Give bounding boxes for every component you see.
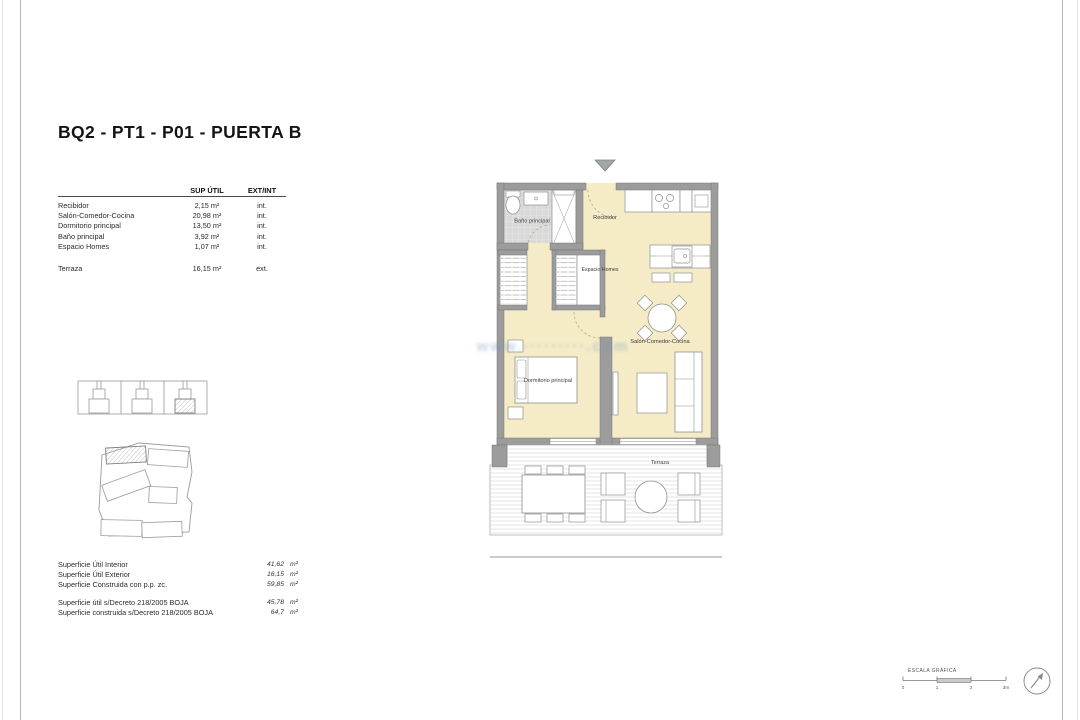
label-homes: Espacio Homes	[581, 267, 618, 273]
header-ext-int: EXT/INT	[238, 186, 286, 195]
scale-tick-2: 2	[970, 685, 973, 690]
table-row: Salón-Comedor-Cocina 20,98 m² int.	[58, 210, 286, 220]
toilet	[506, 191, 520, 214]
room-extint: int.	[238, 242, 286, 251]
scale-graphic: ESCALA GRÁFICA 0 1 2 3m	[902, 668, 1032, 692]
room-extint: ext.	[238, 264, 286, 273]
areas-table-header: SUP ÚTIL EXT/INT	[58, 184, 286, 197]
entrance-triangle-icon	[595, 160, 615, 171]
summary-label: Superficie Construida con p.p. zc.	[58, 580, 236, 589]
block-elevation-diagram	[77, 377, 209, 419]
table-row-terraza: Terraza 16,15 m² ext.	[58, 263, 286, 273]
room-name: Baño principal	[58, 232, 176, 241]
table-row: Espacio Homes 1,07 m² int.	[58, 242, 286, 252]
room-area: 1,07 m²	[176, 242, 238, 251]
summary-unit: m²	[284, 581, 306, 588]
table-row: Dormitorio principal 13,50 m² int.	[58, 221, 286, 231]
bathroom-vanity	[524, 192, 548, 205]
scale-tick-3: 3m	[1003, 685, 1010, 690]
sofa	[675, 352, 702, 432]
shower	[552, 190, 576, 247]
highlighted-building	[106, 446, 147, 464]
label-terrace: Terraza	[651, 460, 669, 466]
table-row: Baño principal 3,92 m² int.	[58, 231, 286, 241]
summary-value: 59,85	[236, 581, 284, 588]
site-plan-diagram	[94, 440, 198, 548]
tv-unit	[613, 372, 618, 415]
room-extint: int.	[238, 221, 286, 230]
page-title: BQ2 - PT1 - P01 - PUERTA B	[58, 122, 302, 143]
kitchen-counter	[625, 190, 711, 212]
summary-unit: m²	[284, 609, 306, 616]
scale-bar: 0 1 2 3m	[902, 674, 1014, 692]
room-extint: int.	[238, 211, 286, 220]
watermark: www.·········.com	[438, 338, 668, 355]
header-sup-util: SUP ÚTIL	[176, 186, 238, 195]
label-hall: Recibidor	[593, 215, 617, 221]
room-area: 20,98 m²	[176, 211, 238, 220]
summary-label: Superficie útil s/Decreto 218/2005 BOJA	[58, 598, 236, 607]
room-name: Dormitorio principal	[58, 221, 176, 230]
summary-label: Superficie Útil Exterior	[58, 570, 236, 579]
label-bathroom: Baño principal	[514, 219, 549, 225]
room-name: Terraza	[58, 264, 176, 273]
nightstand	[508, 407, 523, 419]
room-name: Espacio Homes	[58, 242, 176, 251]
room-extint: int.	[238, 232, 286, 241]
summary-row: Superficie útil s/Decreto 218/2005 BOJA …	[58, 597, 368, 607]
room-name: Recibidor	[58, 201, 176, 210]
areas-table: SUP ÚTIL EXT/INT Recibidor 2,15 m² int. …	[58, 184, 286, 273]
summary-row: Superficie construida s/Decreto 218/2005…	[58, 608, 368, 618]
espacio-homes-closet	[577, 255, 600, 305]
sheet-border-right	[1062, 0, 1063, 720]
table-row: Recibidor 2,15 m² int.	[58, 200, 286, 210]
terrace-window	[550, 439, 696, 445]
summary-row: Superficie Útil Exterior 16,15 m²	[58, 569, 368, 579]
summary-unit: m²	[284, 571, 306, 578]
room-area: 13,50 m²	[176, 221, 238, 230]
room-area: 2,15 m²	[176, 201, 238, 210]
summary-unit: m²	[284, 599, 306, 606]
coffee-table	[637, 373, 667, 413]
highlighted-unit	[175, 399, 195, 413]
scale-tick-0: 0	[902, 685, 905, 690]
summary-label: Superficie Útil Interior	[58, 560, 236, 569]
summary-value: 45,78	[236, 599, 284, 606]
north-arrow-icon	[1018, 663, 1058, 703]
summary-row: Superficie Construida con p.p. zc. 59,85…	[58, 580, 368, 590]
scale-tick-1: 1	[936, 685, 939, 690]
summary-block: Superficie Útil Interior 41,62 m² Superf…	[58, 559, 368, 618]
summary-label: Superficie construida s/Decreto 218/2005…	[58, 608, 236, 617]
room-area: 3,92 m²	[176, 232, 238, 241]
summary-row: Superficie Útil Interior 41,62 m²	[58, 559, 368, 569]
label-bedroom: Dormitorio principal	[524, 378, 572, 384]
room-extint: int.	[238, 201, 286, 210]
summary-value: 41,62	[236, 561, 284, 568]
room-area: 16,15 m²	[176, 264, 238, 273]
sheet-border-left	[20, 0, 21, 720]
summary-unit: m²	[284, 561, 306, 568]
floor-plan: Baño principal Recibidor Espacio Homes S…	[488, 155, 728, 565]
room-name: Salón-Comedor-Cocina	[58, 211, 176, 220]
summary-value: 64,7	[236, 609, 284, 616]
screen-edge-left	[2, 0, 3, 720]
screen-edge-right	[1077, 0, 1078, 720]
summary-value: 16,15	[236, 571, 284, 578]
